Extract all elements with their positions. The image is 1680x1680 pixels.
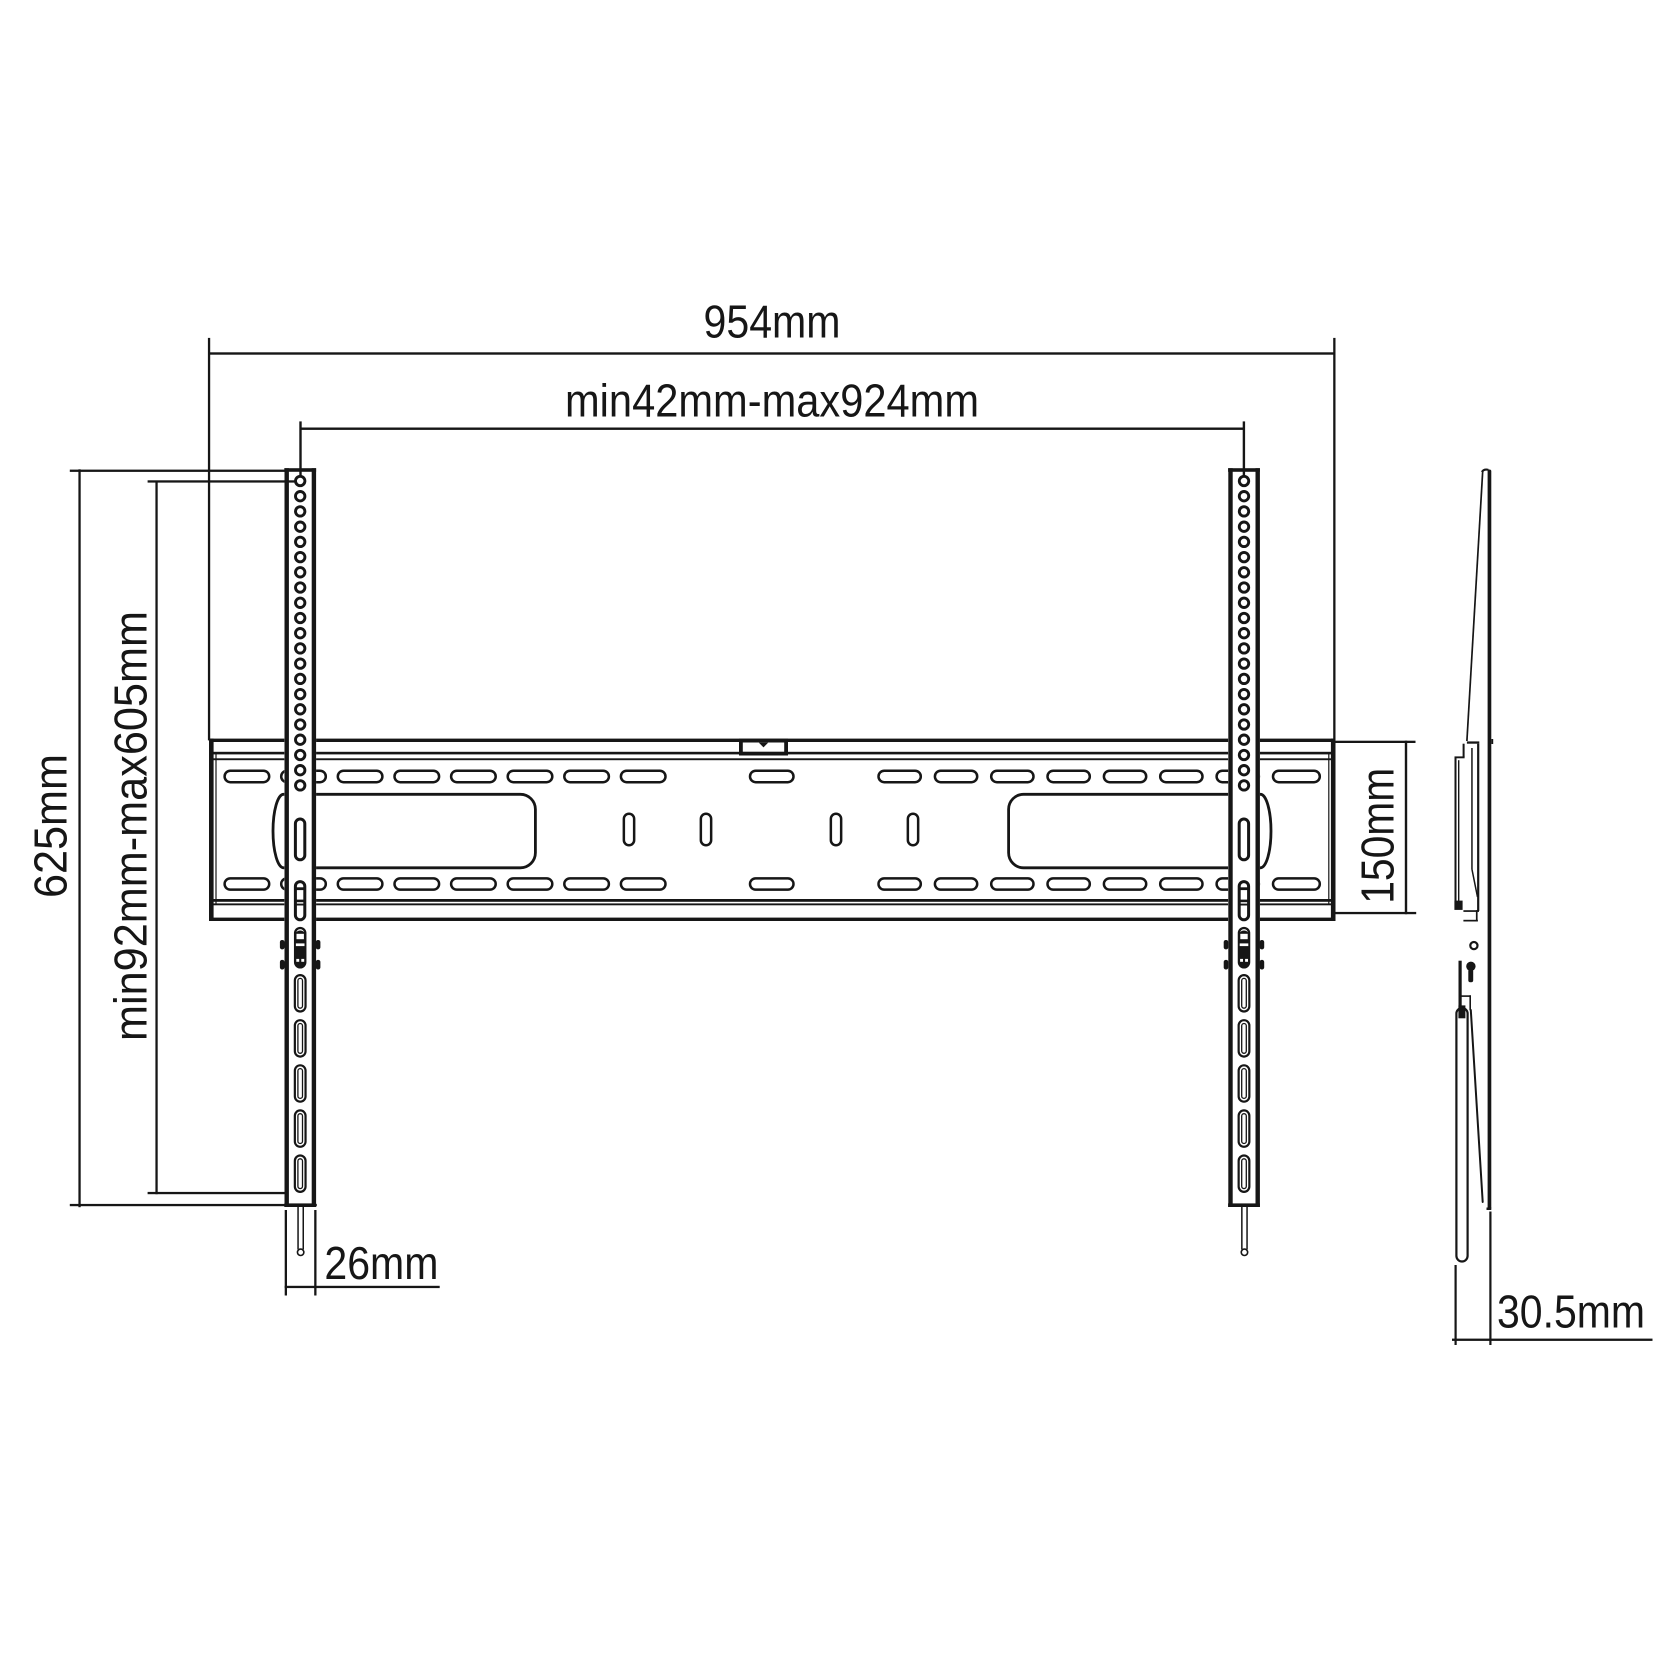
svg-text:150mm: 150mm xyxy=(1352,768,1404,904)
svg-text:min42mm-max924mm: min42mm-max924mm xyxy=(565,375,979,427)
svg-text:954mm: 954mm xyxy=(704,296,841,348)
svg-text:26mm: 26mm xyxy=(324,1237,438,1289)
svg-text:30.5mm: 30.5mm xyxy=(1497,1285,1645,1337)
svg-text:min92mm-max605mm: min92mm-max605mm xyxy=(105,611,157,1041)
svg-text:625mm: 625mm xyxy=(25,754,77,898)
